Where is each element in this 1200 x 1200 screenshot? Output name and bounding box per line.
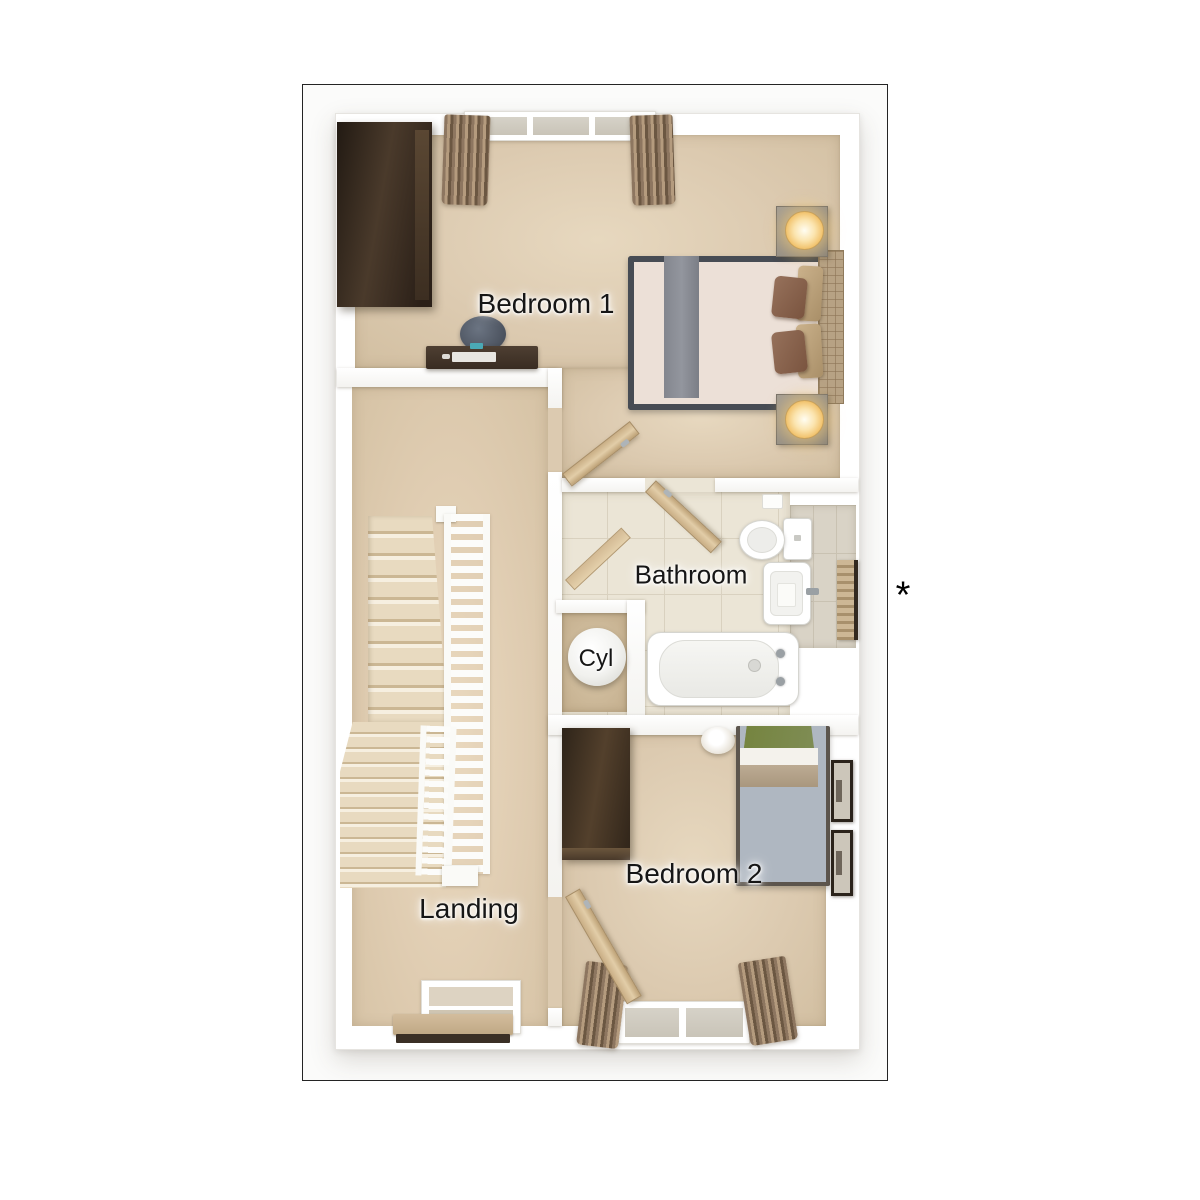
bath-tap (776, 649, 785, 658)
curtain (629, 114, 675, 205)
toilet-cistern (783, 518, 812, 560)
keyboard (452, 352, 496, 362)
floor-plan-image: Bedroom 1 Bathroom Cyl Bedroom 2 Landing… (0, 0, 1200, 1200)
dividing-wall (548, 472, 562, 897)
cylinder-cupboard-wall (627, 600, 645, 715)
bathtub (647, 632, 799, 706)
radiator-shelf (393, 1014, 513, 1044)
window-glass (429, 987, 513, 1006)
bath-drain (748, 659, 761, 672)
curtain (441, 114, 490, 206)
room-label-bedroom2: Bedroom 2 (626, 858, 763, 890)
stair-balustrade-lower (415, 725, 456, 876)
radiator-front (396, 1034, 510, 1043)
window-mullion (527, 117, 533, 135)
picture-frame (831, 760, 853, 822)
bed-sheet (740, 748, 818, 765)
footnote-asterisk: * (896, 575, 911, 618)
window-glass (471, 117, 649, 135)
room-label-bathroom: Bathroom (635, 560, 748, 591)
basin-tap (806, 588, 819, 595)
bedroom1-wardrobe (337, 122, 432, 307)
bedroom1-doorway-threshold (548, 408, 562, 472)
bath-tap (776, 677, 785, 686)
radiator-top (393, 1014, 513, 1035)
towel-radiator (837, 560, 858, 640)
pillow (771, 275, 808, 319)
soap-dish (777, 583, 796, 607)
bathroom-top-wall (715, 478, 858, 492)
bedroom2-wardrobe (562, 728, 630, 860)
bathtub-basin (659, 640, 779, 698)
bedside-stool (701, 727, 735, 754)
pillow (771, 329, 808, 374)
window-mullion (589, 117, 595, 135)
toilet-seat (747, 527, 777, 553)
wardrobe-door-face (415, 130, 429, 300)
dividing-wall (548, 1008, 562, 1026)
room-label-cyl: Cyl (579, 645, 614, 673)
window-mullion (679, 1008, 686, 1037)
bed-throw (744, 726, 814, 748)
desk-accessory (470, 343, 483, 349)
stairwell-top-wall (337, 368, 557, 387)
room-label-landing: Landing (419, 893, 519, 925)
bedroom2-doorway-threshold (548, 897, 562, 1008)
stair-balustrade-end (442, 866, 478, 886)
bed-band (740, 765, 818, 787)
flush-button (794, 535, 801, 541)
bedside-lamp (785, 211, 824, 250)
toilet (739, 520, 785, 560)
bed-runner (664, 256, 699, 398)
dividing-wall (548, 368, 562, 408)
picture-frame (831, 830, 853, 896)
bedside-lamp (785, 400, 824, 439)
desk (426, 346, 538, 369)
mouse (442, 354, 450, 359)
room-label-bedroom1: Bedroom 1 (478, 288, 615, 320)
wash-basin (763, 562, 811, 625)
wardrobe-edge (562, 848, 630, 860)
bedroom1-window (464, 111, 656, 141)
bedroom2-window (618, 1001, 750, 1044)
toilet-roll-holder (762, 494, 783, 509)
